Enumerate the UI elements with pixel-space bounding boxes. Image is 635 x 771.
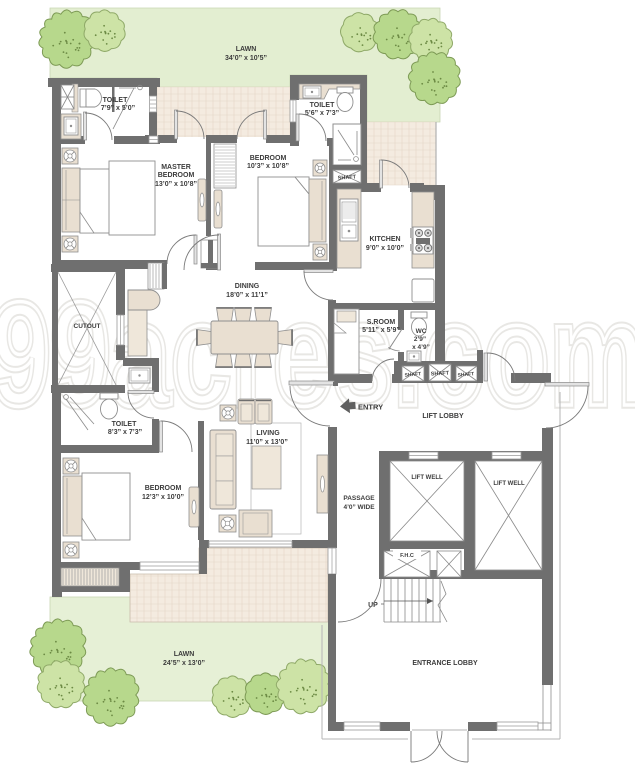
svg-text:7’9” x 5’0”: 7’9” x 5’0” [101,105,135,112]
svg-text:F.H.C: F.H.C [400,553,414,559]
svg-text:24’5” x 13’0”: 24’5” x 13’0” [163,660,205,667]
svg-text:LIVING: LIVING [256,430,280,437]
svg-text:18’0” x 11’1”: 18’0” x 11’1” [226,292,268,299]
svg-text:ENTRANCE LOBBY: ENTRANCE LOBBY [412,660,478,667]
svg-text:8’3” x 7’3”: 8’3” x 7’3” [108,429,142,436]
svg-text:5’11” x 5’9”: 5’11” x 5’9” [362,327,400,334]
svg-text:BEDROOM: BEDROOM [158,172,195,179]
svg-text:12’3” x 10’0”: 12’3” x 10’0” [142,494,184,501]
svg-text:KITCHEN: KITCHEN [369,236,400,243]
svg-text:CUTOUT: CUTOUT [74,323,101,330]
svg-text:S.ROOM: S.ROOM [367,319,396,326]
svg-text:10’3” x 10’8”: 10’3” x 10’8” [247,163,289,170]
svg-text:TOILET: TOILET [112,421,137,428]
svg-text:LIFT WELL: LIFT WELL [411,475,443,481]
svg-text:LIFT LOBBY: LIFT LOBBY [422,413,464,420]
svg-text:MASTER: MASTER [161,164,191,171]
svg-text:x 4’9”: x 4’9” [412,344,430,351]
svg-text:9’0” x 10’0”: 9’0” x 10’0” [366,245,404,252]
svg-text:TOILET: TOILET [103,97,128,104]
svg-text:ENTRY: ENTRY [358,403,383,412]
svg-text:13’0” x 10’8”: 13’0” x 10’8” [155,181,197,188]
svg-text:BEDROOM: BEDROOM [145,485,182,492]
svg-text:SHAFT: SHAFT [431,370,450,377]
svg-text:99acres.com: 99acres.com [0,272,635,437]
svg-text:34’0” x 10’5”: 34’0” x 10’5” [225,55,267,62]
svg-text:DINING: DINING [235,283,260,290]
svg-text:2’9”: 2’9” [414,336,426,343]
svg-text:4’0” WIDE: 4’0” WIDE [343,504,375,511]
svg-text:TOILET: TOILET [310,102,335,109]
svg-text:LIFT WELL: LIFT WELL [493,481,525,487]
svg-text:WC: WC [416,328,427,335]
svg-text:PASSAGE: PASSAGE [343,495,375,502]
svg-text:LAWN: LAWN [236,46,257,53]
svg-text:LAWN: LAWN [174,651,195,658]
svg-text:BEDROOM: BEDROOM [250,155,287,162]
svg-text:11’0” x 13’0”: 11’0” x 13’0” [246,439,288,446]
